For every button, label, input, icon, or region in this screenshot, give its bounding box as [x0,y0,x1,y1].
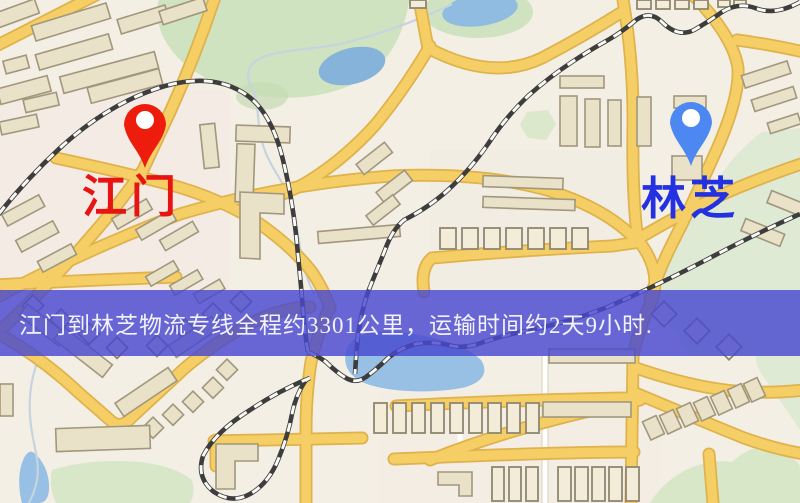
destination-marker[interactable] [666,96,716,168]
map-canvas[interactable]: 江门 林芝 江门到林芝物流专线全程约3301公里，运输时间约2天9小时. [0,0,800,503]
water-bottom-left [19,452,49,503]
route-info-text: 江门到林芝物流专线全程约3301公里，运输时间约2天9小时. [0,306,653,340]
origin-city-label: 江门 [82,174,180,219]
map-pin-icon [666,96,716,168]
map-pin-icon [120,98,170,170]
route-info-banner: 江门到林芝物流专线全程约3301公里，运输时间约2天9小时. [0,290,800,356]
green-bottom-right [650,448,800,503]
origin-marker[interactable] [120,98,170,170]
map-image [0,0,800,503]
field-bottom-left [51,461,194,503]
destination-city-label: 林芝 [641,176,739,221]
